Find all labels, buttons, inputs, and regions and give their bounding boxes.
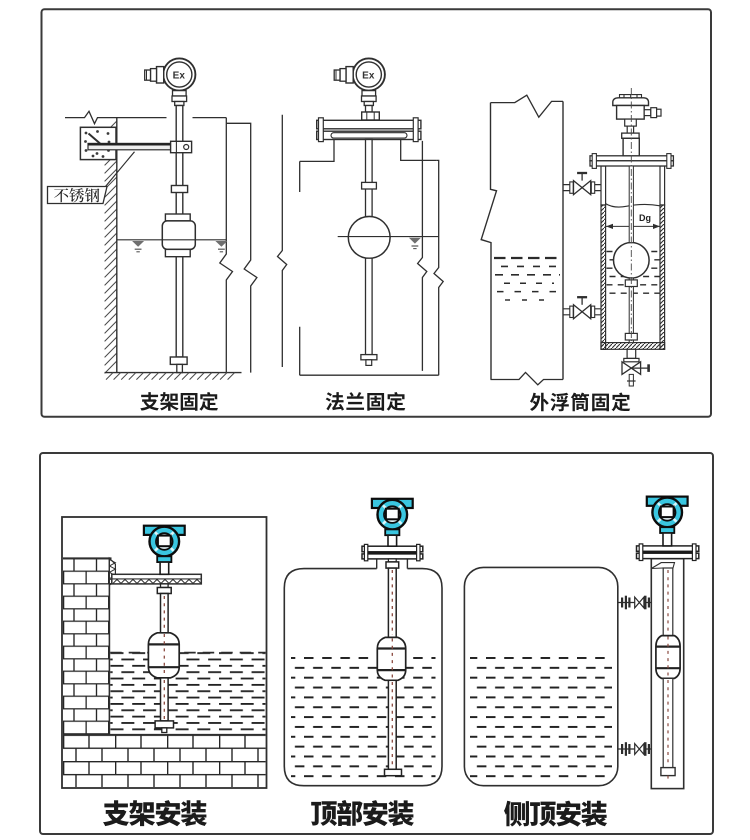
svg-text:Dg: Dg [639,213,651,223]
svg-text:Ex: Ex [362,71,375,82]
svg-text:Ex: Ex [173,71,186,82]
